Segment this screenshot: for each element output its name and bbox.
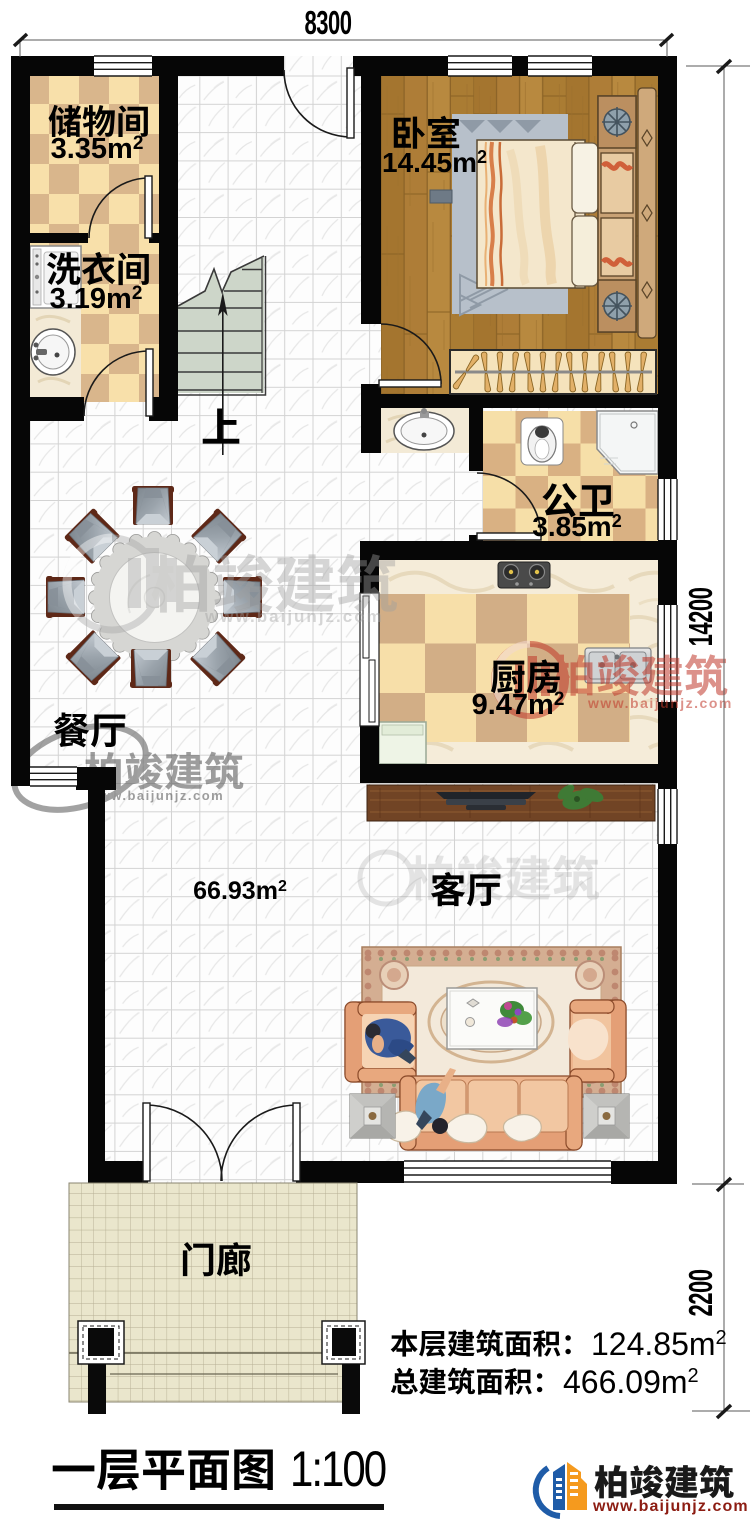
svg-text:3.35m2: 3.35m2 [51, 133, 144, 165]
svg-text:3.85m2: 3.85m2 [532, 511, 621, 542]
svg-text:www.baijunjz.com: www.baijunjz.com [587, 695, 733, 711]
svg-text:14200: 14200 [683, 588, 719, 647]
svg-text:www.baijunjz.com: www.baijunjz.com [87, 788, 224, 803]
svg-text:www.baijunjz.com: www.baijunjz.com [592, 1498, 749, 1515]
svg-text:124.85m2: 124.85m2 [591, 1326, 727, 1362]
svg-text:8300: 8300 [305, 5, 352, 41]
svg-text:66.93m2: 66.93m2 [193, 877, 287, 905]
svg-text:2200: 2200 [683, 1270, 719, 1317]
svg-text:1:100: 1:100 [290, 1440, 385, 1496]
svg-text:www.baijunjz.com: www.baijunjz.com [204, 607, 384, 626]
svg-text:466.09m2: 466.09m2 [563, 1364, 699, 1400]
svg-text:14.45m2: 14.45m2 [382, 147, 487, 178]
svg-text:3.19m2: 3.19m2 [50, 283, 143, 315]
svg-text:9.47m2: 9.47m2 [472, 689, 565, 721]
